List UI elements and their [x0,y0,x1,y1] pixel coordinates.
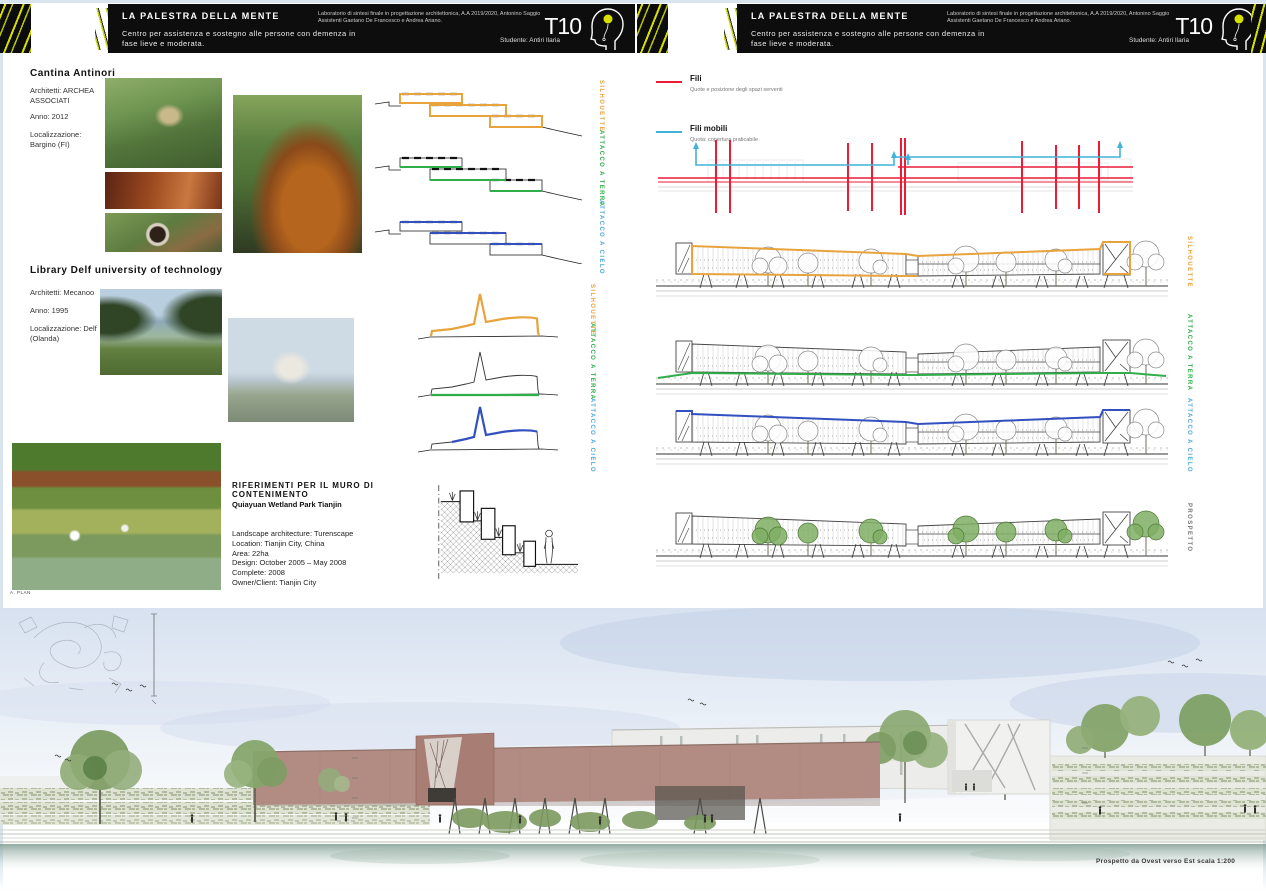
cantina-courtyard-photo [105,213,222,252]
course-credits-2: Laboratorio di sintesi finale in progett… [947,11,1175,26]
detail-owner: Owner/Client: Tianjin City [232,578,422,588]
plan-label: A. PLAN [10,590,31,595]
page-title: LA PALESTRA DELLA MENTE [122,11,280,21]
brush-stroke-left [0,4,31,53]
team-code: T10 [544,13,581,40]
library-title: Library Delf university of technology [30,265,222,276]
cantina-corten-photo [105,172,222,209]
detail-design: Design: October 2005 – May 2008 [232,558,422,568]
legend-fili-label: Fili [690,74,702,83]
library-building-photo [100,289,222,375]
head-lightbulb-icon [585,7,625,56]
label-attacco-terra-2: ATTACCO A TERRA [589,323,595,400]
cantina-aerial-photo [105,78,222,168]
legend-fili-mobili-swatch [656,131,682,133]
cantina-sections-sketch [372,80,584,269]
brush-accent-header-end [1251,4,1266,53]
page-subtitle: Centro per assistenza e sostegno alle pe… [122,29,357,49]
fili-diagram [658,135,1133,225]
cantina-terrace-photo [233,95,362,253]
drawing-caption: Prospetto da Ovest verso Est scala 1:200 [1096,858,1235,865]
riferimenti-details: Landscape architecture: Turenscape Locat… [232,529,422,588]
wetland-park-photo [12,443,221,590]
library-year: Anno: 1995 [30,306,68,316]
label-row-attacco-terra: ATTACCO A TERRA [1186,314,1192,391]
elevation-rendering [0,608,1266,891]
label-attacco-cielo-1: ATTACCO A CIELO [598,200,604,275]
detail-area: Area: 22ha [232,549,422,559]
library-cone-photo [228,318,354,422]
detail-complete: Complete: 2008 [232,568,422,578]
page-title-2: LA PALESTRA DELLA MENTE [751,11,909,21]
label-row-prospetto: PROSPETTO [1186,503,1192,553]
riferimenti-project: Quiayuan Wetland Park Tianjin [232,500,342,509]
library-sections-sketch [418,287,558,460]
legend-fili-swatch [656,81,682,83]
detail-landscape: Landscape architecture: Turenscape [232,529,422,539]
presentation-board: LA PALESTRA DELLA MENTE Centro per assis… [0,0,1266,891]
course-credits: Laboratorio di sintesi finale in progett… [318,11,546,26]
head-lightbulb-icon-2 [1216,7,1256,56]
cantina-location: Localizzazione: Bargino (FI) [30,130,108,150]
cantina-title: Cantina Antinori [30,68,115,79]
legend-fili-desc: Quote e posizione degli spazi serventi [690,87,783,93]
brush-accent-left-header [95,8,108,50]
label-attacco-cielo-2: ATTACCO A CIELO [589,398,595,473]
cantina-architects: Architetti: ARCHEA ASSOCIATI [30,86,112,106]
label-silhouette-1: SILHOUETTE [598,80,604,132]
detail-location: Location: Tianjin City, China [232,539,422,549]
student-label-2: Studente: [1129,37,1157,44]
cantina-year: Anno: 2012 [30,112,68,122]
label-attacco-terra-1: ATTACCO A TERRA [598,130,604,207]
brush-stroke-middle [637,4,668,53]
label-row-silhouette: SILHOUETTE [1186,236,1192,288]
brush-accent-right-header [724,8,737,50]
header-right-panel: LA PALESTRA DELLA MENTE Centro per assis… [737,4,1266,53]
label-row-attacco-cielo: ATTACCO A CIELO [1186,398,1192,473]
riferimenti-title: RIFERIMENTI PER IL MURO DI CONTENIMENTO [232,481,437,499]
team-code-2: T10 [1175,13,1212,40]
library-architects: Architetti: Mecanoo [30,288,94,298]
legend-fili-mobili-label: Fili mobili [690,124,727,133]
page-subtitle-2: Centro per assistenza e sostegno alle pe… [751,29,986,49]
header-left-panel: LA PALESTRA DELLA MENTE Centro per assis… [108,4,635,53]
elevation-study-rows [656,230,1168,580]
retaining-wall-sketch [433,477,578,594]
student-label: Studente: [500,37,528,44]
